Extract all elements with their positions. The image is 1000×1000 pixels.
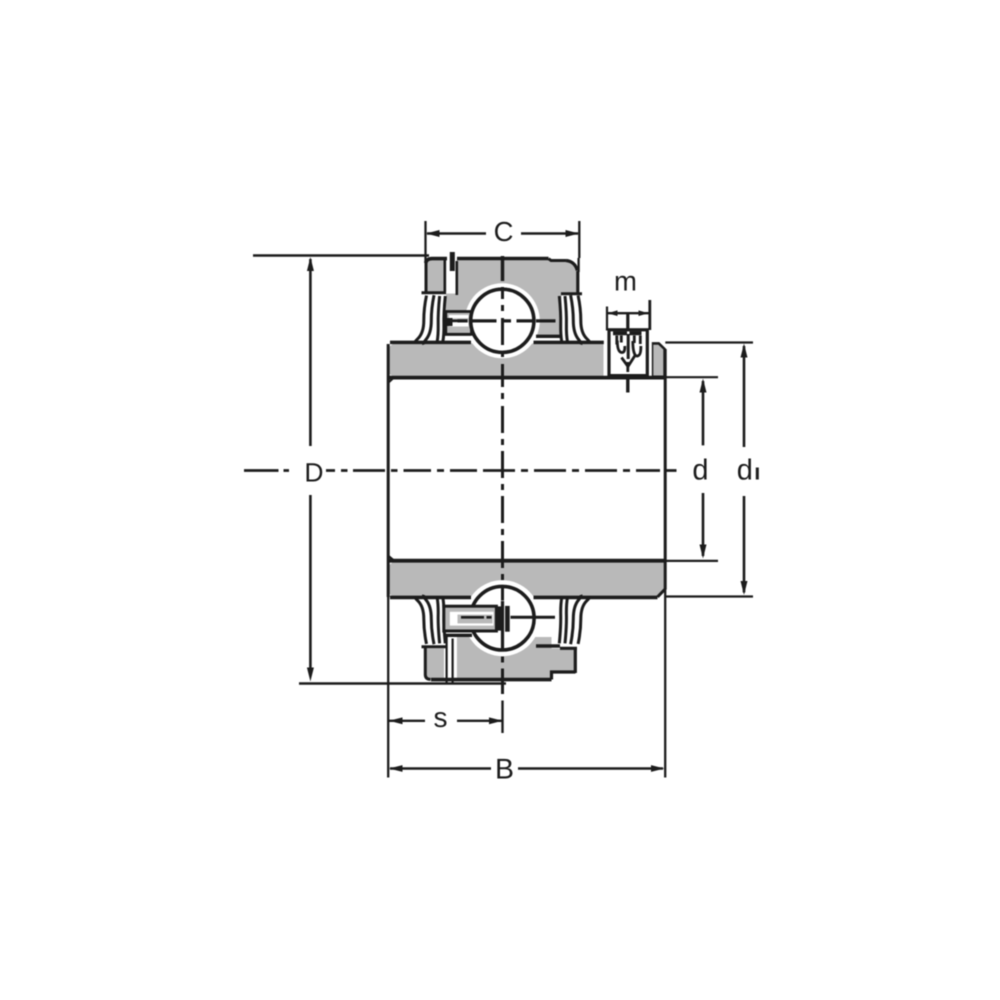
svg-text:d: d: [737, 455, 753, 487]
svg-text:s: s: [434, 702, 448, 733]
svg-text:C: C: [494, 216, 514, 247]
svg-text:m: m: [614, 266, 637, 297]
svg-text:d: d: [692, 455, 708, 487]
svg-text:D: D: [304, 458, 323, 488]
svg-text:B: B: [495, 754, 514, 786]
